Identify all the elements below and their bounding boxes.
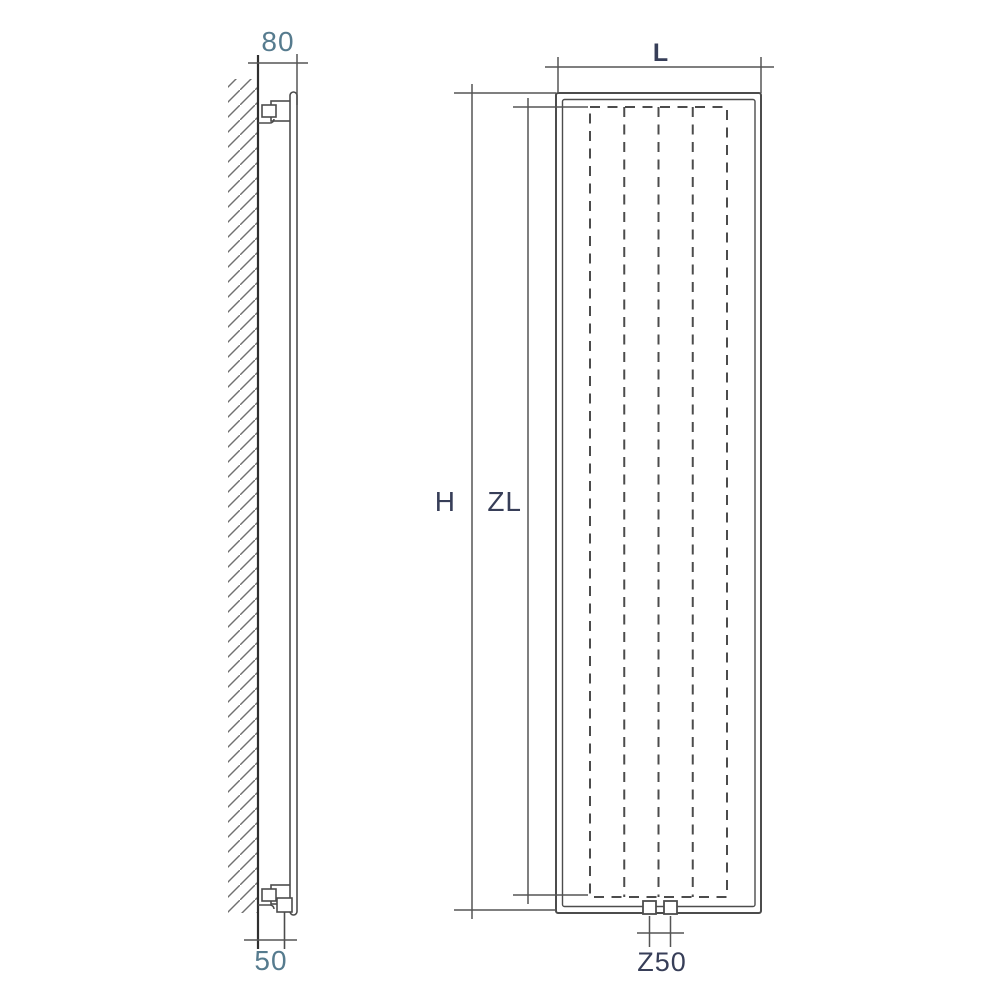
wall-hatching [228, 79, 257, 913]
diagram-canvas: 80 50 L [0, 0, 1000, 1000]
label-50: 50 [254, 945, 287, 976]
pipe-stub-right [664, 901, 677, 914]
side-view: 80 50 [228, 26, 308, 976]
radiator-panel-side [290, 92, 297, 915]
dimension-50: 50 [244, 940, 297, 976]
radiator-dimension-drawing: 80 50 L [0, 0, 1000, 1000]
dimension-L: L [545, 39, 774, 93]
mounting-bracket-top [258, 101, 291, 123]
valve-connection [277, 898, 292, 949]
label-H: H [435, 486, 456, 517]
label-L: L [653, 39, 669, 67]
dimension-Z50: Z50 [637, 916, 687, 977]
label-80: 80 [261, 26, 294, 57]
front-view: L H ZL Z50 [435, 39, 774, 977]
label-Z50: Z50 [637, 947, 687, 977]
label-ZL: ZL [487, 486, 522, 517]
pipe-stub-left [643, 901, 656, 914]
